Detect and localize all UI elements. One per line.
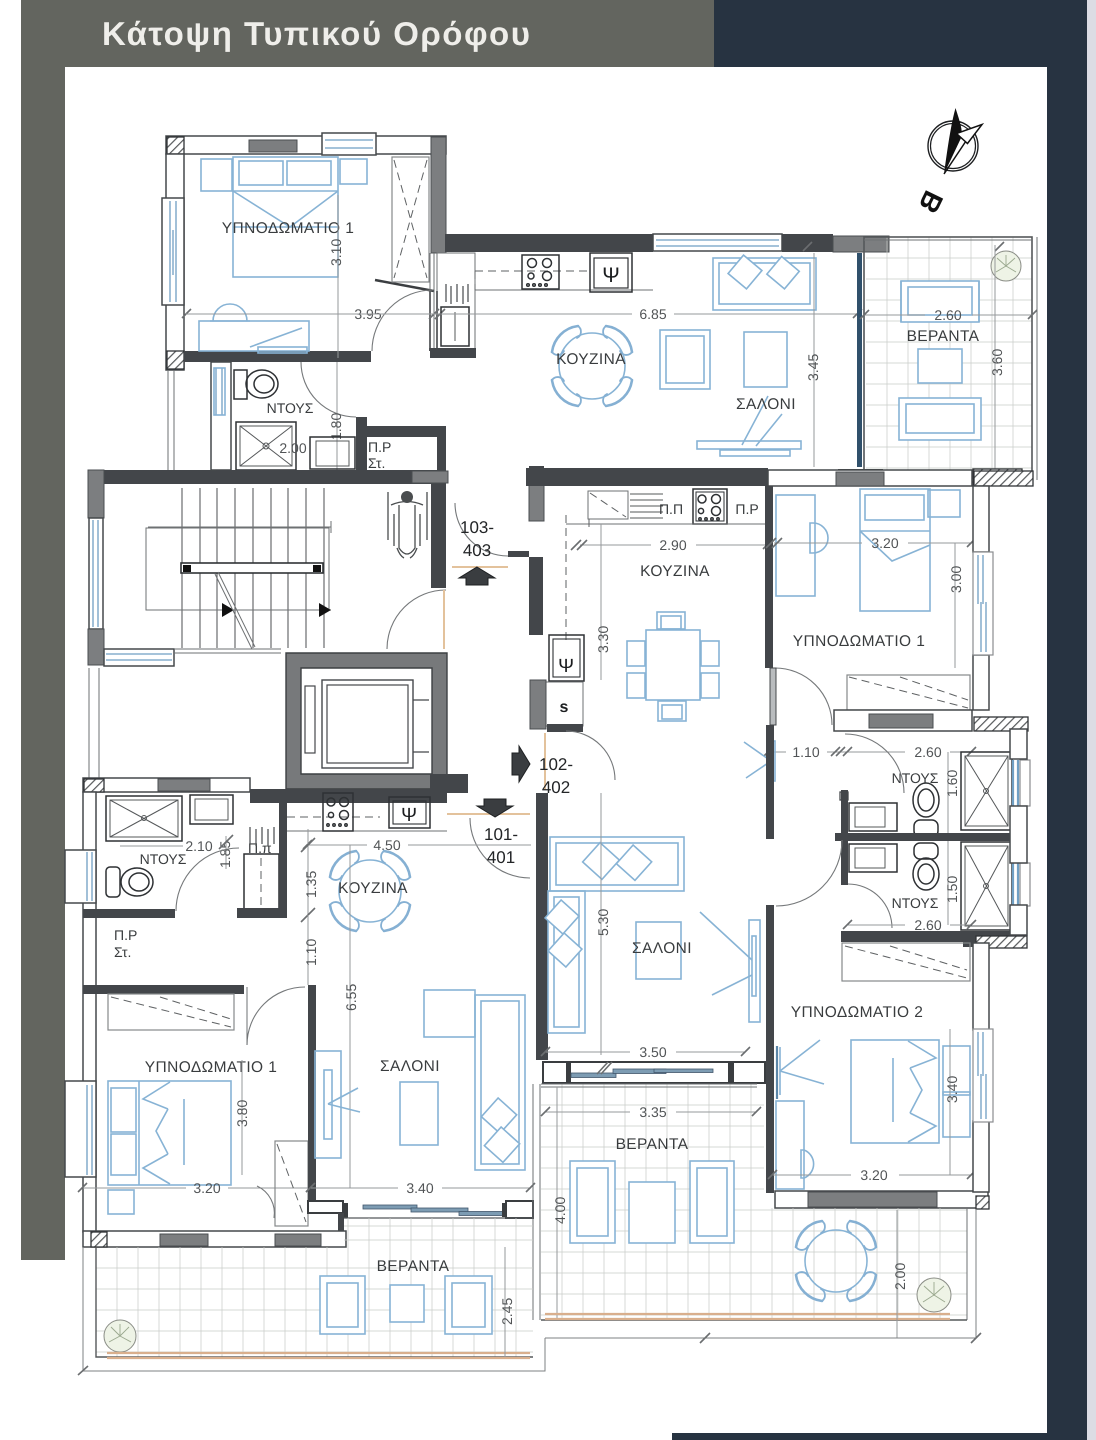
svg-text:401: 401	[487, 848, 515, 867]
svg-text:1.50: 1.50	[944, 876, 960, 903]
svg-text:1.10: 1.10	[792, 744, 819, 760]
svg-text:1.10: 1.10	[303, 939, 319, 966]
svg-text:Π.Ρ: Π.Ρ	[114, 927, 137, 943]
svg-text:Π.Ρ: Π.Ρ	[368, 439, 391, 455]
svg-text:2.60: 2.60	[914, 917, 941, 933]
svg-text:ΒΕΡΑΝΤΑ: ΒΕΡΑΝΤΑ	[907, 328, 980, 345]
svg-text:ΥΠΝΟΔΩΜΑΤΙΟ 1: ΥΠΝΟΔΩΜΑΤΙΟ 1	[145, 1059, 277, 1076]
svg-text:1.35: 1.35	[303, 871, 319, 898]
svg-text:ΥΠΝΟΔΩΜΑΤΙΟ 2: ΥΠΝΟΔΩΜΑΤΙΟ 2	[791, 1004, 923, 1021]
svg-text:3.80: 3.80	[234, 1100, 250, 1127]
svg-text:Στ.: Στ.	[368, 455, 385, 471]
svg-text:3.50: 3.50	[639, 1044, 666, 1060]
svg-text:101-: 101-	[484, 825, 518, 844]
svg-text:Π.Π: Π.Π	[659, 501, 683, 517]
svg-text:ΣΑΛΟΝΙ: ΣΑΛΟΝΙ	[380, 1058, 440, 1075]
svg-text:ΥΠΝΟΔΩΜΑΤΙΟ 1: ΥΠΝΟΔΩΜΑΤΙΟ 1	[793, 633, 925, 650]
svg-text:3.40: 3.40	[944, 1076, 960, 1103]
svg-text:5.30: 5.30	[595, 909, 611, 936]
svg-text:3.35: 3.35	[639, 1104, 666, 1120]
svg-text:3.60: 3.60	[989, 349, 1005, 376]
svg-text:ΚΟΥΖΙΝΑ: ΚΟΥΖΙΝΑ	[338, 880, 408, 897]
svg-text:402: 402	[542, 778, 570, 797]
svg-text:ΝΤΟΥΣ: ΝΤΟΥΣ	[892, 895, 939, 911]
svg-text:2.90: 2.90	[659, 537, 686, 553]
svg-text:3.45: 3.45	[805, 354, 821, 381]
svg-text:ΝΤΟΥΣ: ΝΤΟΥΣ	[267, 400, 314, 416]
svg-text:Π.Ρ: Π.Ρ	[735, 501, 758, 517]
svg-text:2.60: 2.60	[914, 744, 941, 760]
svg-text:2.60: 2.60	[934, 307, 961, 323]
svg-text:1.60: 1.60	[944, 770, 960, 797]
svg-text:3.20: 3.20	[193, 1180, 220, 1196]
svg-text:3.20: 3.20	[860, 1167, 887, 1183]
svg-text:Ψ: Ψ	[558, 656, 574, 677]
svg-text:Ψ: Ψ	[602, 264, 620, 287]
svg-text:103-: 103-	[460, 518, 494, 537]
svg-text:3.30: 3.30	[595, 626, 611, 653]
svg-text:2.00: 2.00	[892, 1263, 908, 1290]
svg-text:3.00: 3.00	[948, 566, 964, 593]
svg-text:ΝΤΟΥΣ: ΝΤΟΥΣ	[140, 851, 187, 867]
svg-text:403: 403	[463, 541, 491, 560]
svg-text:102-: 102-	[539, 755, 573, 774]
svg-text:ΚΟΥΖΙΝΑ: ΚΟΥΖΙΝΑ	[556, 351, 626, 368]
svg-text:3.20: 3.20	[871, 535, 898, 551]
svg-text:2.10: 2.10	[185, 838, 212, 854]
svg-text:3.10: 3.10	[328, 239, 344, 266]
svg-text:6.85: 6.85	[639, 306, 666, 322]
svg-text:1.85: 1.85	[217, 841, 233, 868]
svg-text:ΒΕΡΑΝΤΑ: ΒΕΡΑΝΤΑ	[377, 1258, 450, 1275]
svg-text:2.45: 2.45	[499, 1298, 515, 1325]
svg-text:2.00: 2.00	[279, 440, 306, 456]
svg-text:Στ.: Στ.	[114, 944, 131, 960]
svg-text:ΣΑΛΟΝΙ: ΣΑΛΟΝΙ	[632, 940, 692, 957]
svg-text:Κάτοψη Τυπικού Ορόφου: Κάτοψη Τυπικού Ορόφου	[102, 15, 531, 52]
svg-text:6.55: 6.55	[343, 984, 359, 1011]
svg-text:ΝΤΟΥΣ: ΝΤΟΥΣ	[892, 770, 939, 786]
svg-text:s: s	[560, 699, 569, 716]
svg-text:1.80: 1.80	[328, 413, 344, 440]
svg-text:4.00: 4.00	[552, 1197, 568, 1224]
svg-text:ΣΑΛΟΝΙ: ΣΑΛΟΝΙ	[736, 396, 796, 413]
svg-text:ΒΕΡΑΝΤΑ: ΒΕΡΑΝΤΑ	[616, 1136, 689, 1153]
svg-text:3.40: 3.40	[406, 1180, 433, 1196]
svg-text:Ψ: Ψ	[401, 805, 417, 826]
svg-text:ΥΠΝΟΔΩΜΑΤΙΟ 1: ΥΠΝΟΔΩΜΑΤΙΟ 1	[222, 220, 354, 237]
svg-text:ΚΟΥΖΙΝΑ: ΚΟΥΖΙΝΑ	[640, 563, 710, 580]
